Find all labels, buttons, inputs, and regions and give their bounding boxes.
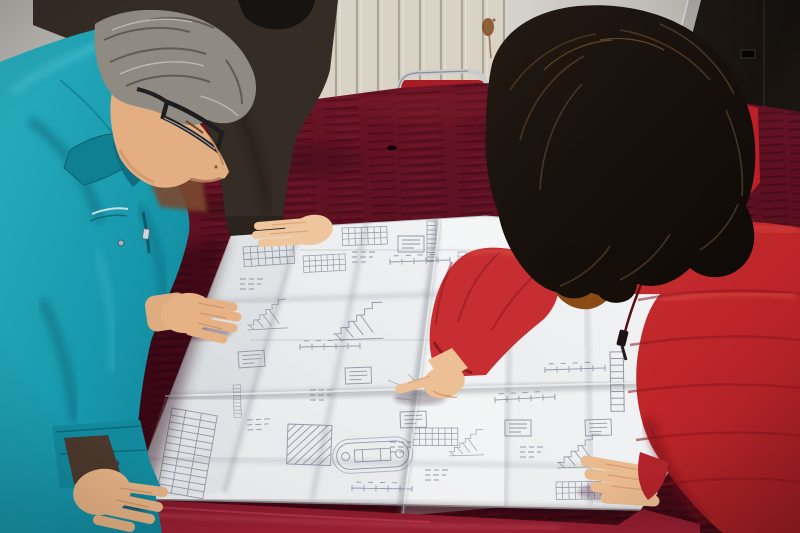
vignette — [0, 0, 800, 533]
photo-illustration — [0, 0, 800, 533]
photo-scene — [0, 0, 800, 533]
